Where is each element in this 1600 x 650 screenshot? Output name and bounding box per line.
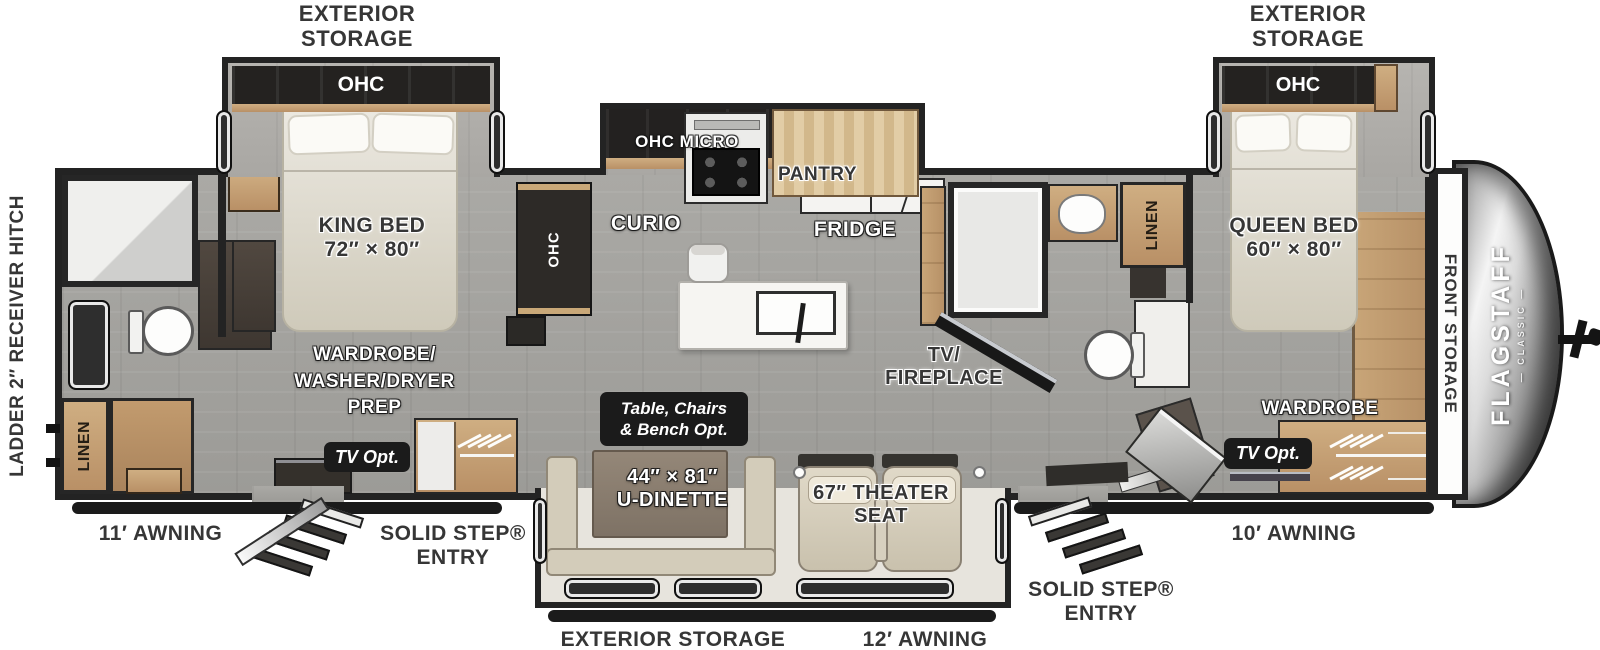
brand-series: — CLASSIC —	[1516, 243, 1526, 426]
right-entry-mat	[1046, 462, 1129, 486]
mid-shower	[948, 182, 1048, 318]
label-rear-linen: LINEN	[60, 398, 110, 494]
curio-end-cabinet	[506, 316, 546, 346]
label-curio: CURIO	[596, 212, 696, 236]
mid-toilet	[1084, 330, 1134, 380]
rear-bath-wall	[218, 175, 226, 337]
label-awning-left: 11′ AWNING	[88, 522, 233, 546]
label-exterior-storage-top-left: EXTERIOR STORAGE	[262, 1, 452, 52]
queen-ohc-label: OHC	[1276, 74, 1320, 97]
label-wardrobe-prep: WARDROBE/ WASHER/DRYER PREP	[282, 342, 467, 422]
label-queen-bed: QUEEN BED 60″ × 80″	[1206, 214, 1382, 262]
rear-bath-stool	[126, 468, 182, 494]
awning-rail-left	[72, 502, 502, 514]
king-pillow-left	[287, 113, 370, 156]
queen-pillow-right	[1295, 113, 1352, 153]
queen-wardrobe-rod	[1336, 454, 1426, 457]
king-pillow-right	[371, 113, 454, 156]
queen-corner-cabinet	[1374, 64, 1398, 112]
king-window-right	[489, 110, 505, 174]
queen-ohc-cabinet: OHC	[1222, 66, 1374, 104]
awning-rail-bottom	[548, 610, 996, 622]
dinette-window-left	[564, 578, 660, 599]
king-ohc-shelf	[232, 104, 490, 112]
label-entry-right: SOLID STEP® ENTRY	[1010, 578, 1192, 626]
left-wardrobe-shelf	[418, 422, 456, 490]
label-entry-left: SOLID STEP® ENTRY	[362, 522, 544, 570]
kitchen-island	[678, 281, 848, 350]
right-entry-opening	[1018, 486, 1108, 502]
right-tv-base	[1230, 472, 1310, 481]
mid-bath-wood-wall	[920, 186, 946, 326]
stove-controls	[694, 120, 760, 130]
floorplan-canvas: EXTERIOR STORAGE EXTERIOR STORAGE LADDER…	[0, 0, 1600, 650]
king-ohc-label: OHC	[338, 73, 385, 97]
stove	[684, 112, 768, 204]
rear-shower	[62, 175, 198, 287]
dinette-option-chip: Table, Chairs & Bench Opt.	[600, 392, 748, 446]
queen-pillow-left	[1234, 113, 1291, 153]
left-tv-opt-chip: TV Opt.	[324, 442, 410, 472]
rear-toilet	[142, 306, 194, 356]
dinette-bench-bottom	[546, 548, 776, 576]
left-wardrobe-rod	[460, 454, 514, 457]
theater-window	[796, 578, 954, 599]
label-ladder-receiver-hitch: LADDER 2″ RECEIVER HITCH	[0, 168, 40, 503]
mid-bath-sink	[1058, 194, 1106, 234]
theater-light-left	[793, 466, 806, 479]
label-mid-linen: LINEN	[1120, 182, 1186, 268]
label-tv-fireplace: TV/ FIREPLACE	[858, 344, 1030, 390]
queen-window-left	[1206, 110, 1222, 174]
label-theater-seat: 67″ THEATER SEAT	[795, 482, 967, 528]
label-wardrobe: WARDROBE	[1240, 398, 1400, 420]
label-front-storage: FRONT STORAGE	[1432, 168, 1468, 500]
label-dinette: 44″ × 81″ U-DINETTE	[590, 466, 755, 512]
island-sink	[756, 291, 836, 335]
king-ohc-cabinet: OHC	[232, 66, 490, 104]
label-awning-right: 10′ AWNING	[1228, 522, 1360, 546]
queen-ohc-shelf	[1222, 104, 1374, 112]
label-awning-bottom: 12′ AWNING	[835, 628, 1015, 650]
king-bed-seam	[284, 170, 456, 172]
label-exterior-storage-bottom: EXTERIOR STORAGE	[560, 628, 786, 650]
rear-bath-window	[68, 300, 110, 390]
theater-light-right	[973, 466, 986, 479]
right-tv-opt-chip: TV Opt.	[1224, 438, 1312, 469]
mid-bath-cabinet	[1130, 268, 1166, 298]
label-curio-ohc: OHC	[516, 182, 592, 316]
mid-bath-right-wall	[1186, 175, 1193, 303]
label-fridge: FRIDGE	[775, 218, 935, 242]
dinette-side-window-right	[995, 498, 1009, 564]
brand-logo: FLAGSTAFF — CLASSIC —	[1452, 160, 1560, 508]
king-window-left	[216, 110, 232, 174]
left-wardrobe	[414, 418, 518, 494]
left-entry-opening	[252, 486, 344, 502]
label-ohc-micro: OHC MICRO	[606, 132, 768, 152]
label-pantry: PANTRY	[740, 164, 895, 186]
island-chair	[687, 243, 729, 283]
dinette-window-right	[674, 578, 762, 599]
king-dresser	[232, 240, 276, 332]
mid-bath-sink-counter	[1048, 184, 1118, 242]
label-king-bed: KING BED 72″ × 80″	[288, 214, 456, 262]
brand-name: FLAGSTAFF	[1487, 243, 1516, 426]
label-exterior-storage-top-right: EXTERIOR STORAGE	[1213, 1, 1403, 52]
queen-window-right	[1420, 110, 1436, 174]
